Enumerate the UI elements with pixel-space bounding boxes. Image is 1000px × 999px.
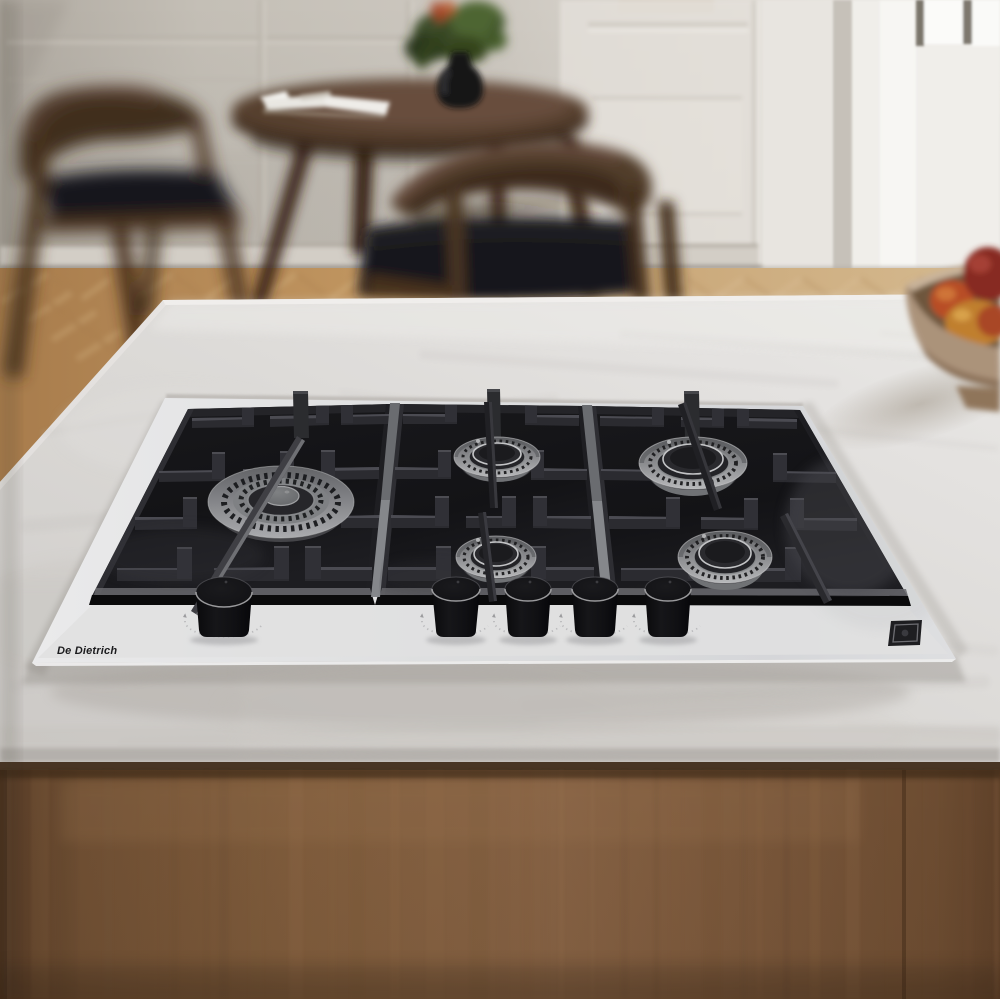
svg-text:De Dietrich: De Dietrich bbox=[57, 645, 117, 657]
